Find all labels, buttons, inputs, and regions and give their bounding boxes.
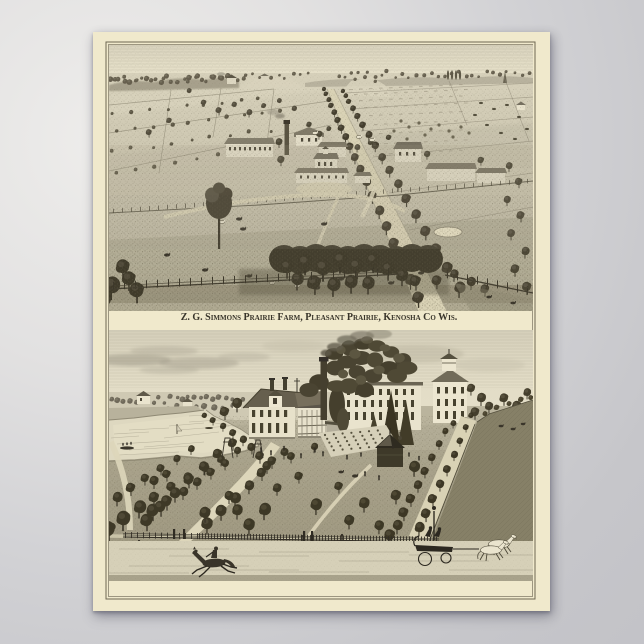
svg-text:Z. G. Simmons Prairie Farm, Pl: Z. G. Simmons Prairie Farm, Pleasant Pra… <box>181 312 458 323</box>
